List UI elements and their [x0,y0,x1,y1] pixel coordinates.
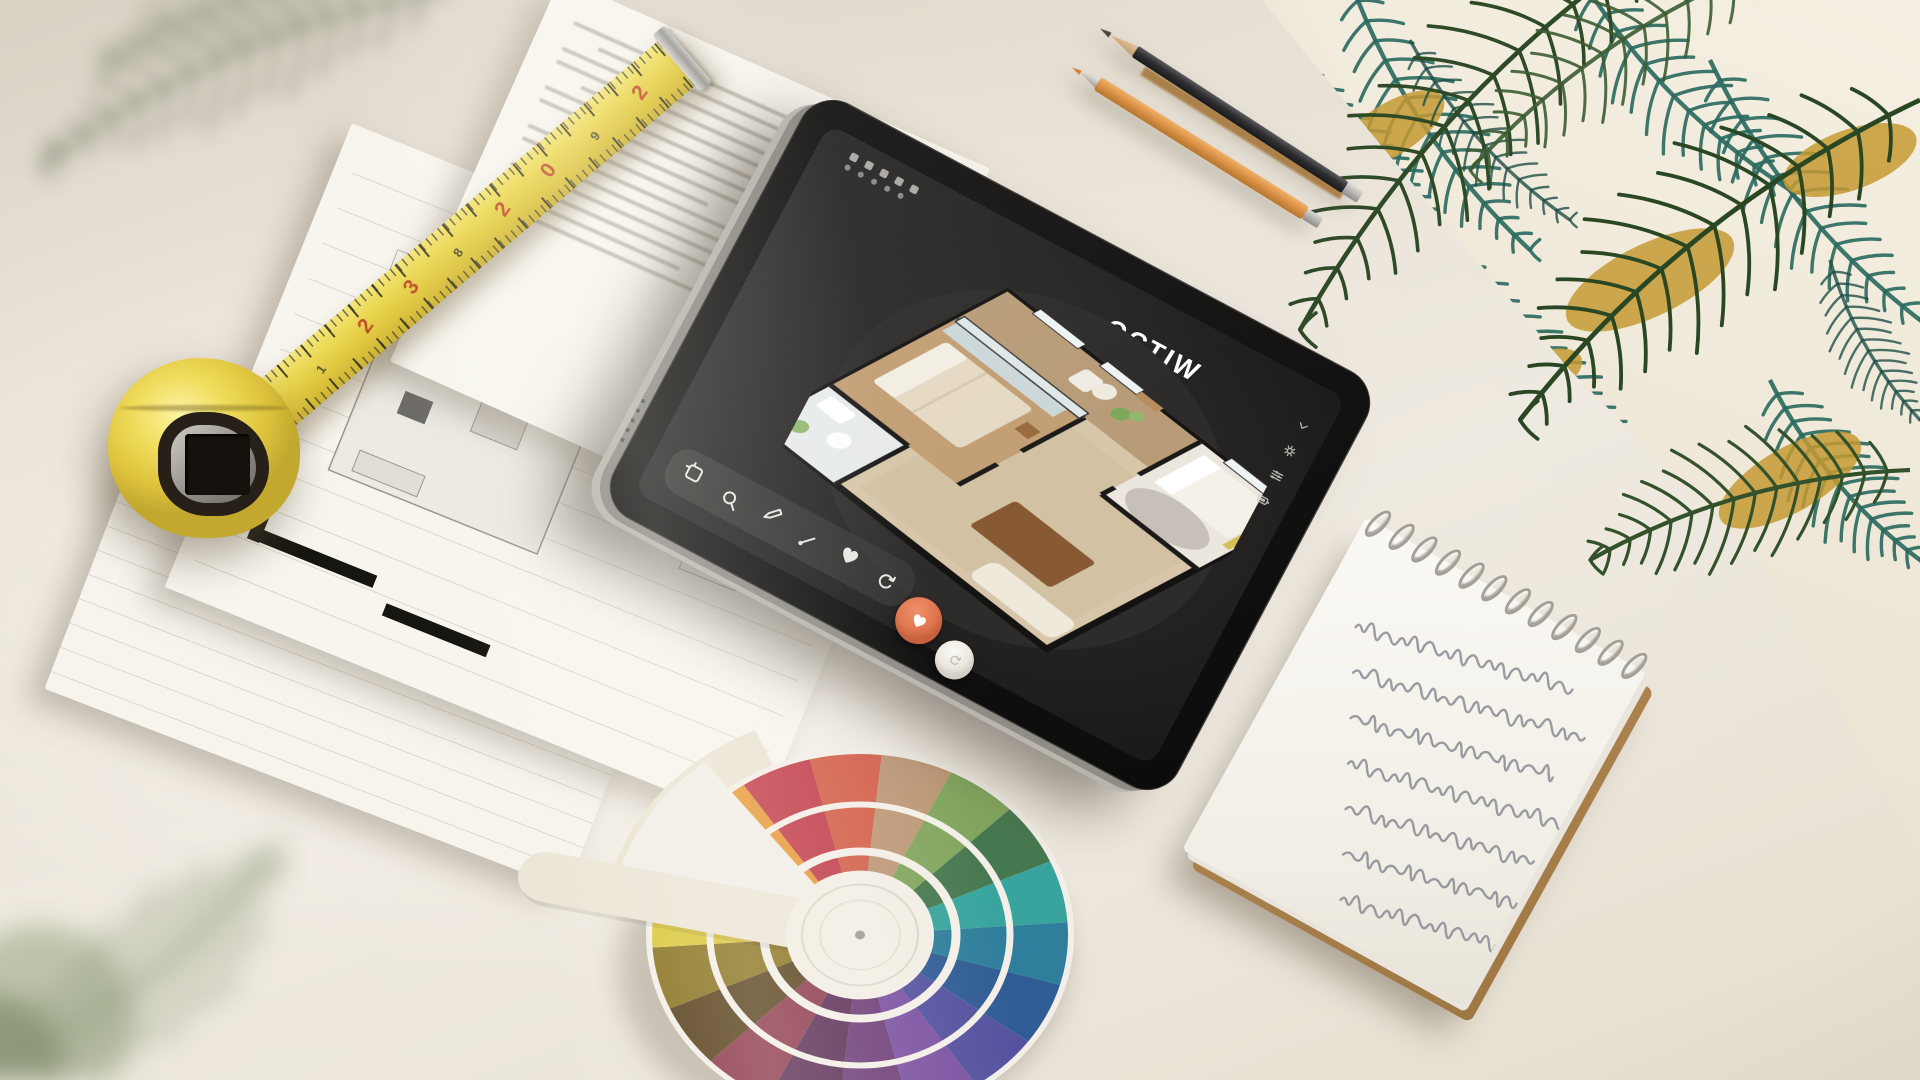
clock-status-icon [864,160,875,171]
handwriting-line [1342,802,1538,868]
status-glyph [857,171,865,179]
search-icon[interactable] [715,485,745,515]
foreground-leaf-blur [0,690,330,1080]
pencil-lead [1071,65,1082,75]
spiral-coil [1431,545,1466,580]
notification-status-icon [909,184,920,195]
handwriting-line [1349,666,1590,743]
spiral-coil [1524,597,1559,632]
pencil-lead [1098,26,1111,38]
signal-status-icon [879,168,890,179]
tape-measure-body [108,358,300,538]
tape-number: 2 [353,314,379,337]
palm-shadow-top-left [0,0,460,280]
status-glyph [883,185,891,193]
refresh-icon[interactable] [870,567,900,597]
spiral-coil [1547,610,1582,645]
color-wheel [600,715,1120,1080]
tape-exit-slot [185,434,250,495]
spiral-coil [1477,571,1512,606]
pencil-end-cap [1302,208,1324,228]
grid-status-icon [849,152,860,163]
tape-number: 2 [490,198,516,221]
tape-case-seam [120,405,289,411]
status-glyph [896,192,904,200]
handwriting-line [1339,848,1520,911]
tape-number: 8 [450,245,466,260]
spiral-coil [1594,636,1629,671]
status-glyph [870,178,878,186]
tape-number: 2 [627,81,653,104]
status-glyph [843,164,851,172]
tape-number: 9 [587,129,603,144]
handwriting-line [1337,893,1500,952]
status-icons [843,152,919,204]
heart-icon[interactable] [834,541,864,571]
battery-status-icon [894,176,905,187]
pen-icon[interactable] [756,500,786,530]
crop-icon[interactable] [679,459,709,489]
spiral-coil [1407,532,1442,567]
tape-number: 1 [313,362,329,377]
tape-number: 0 [536,159,562,182]
tape-number: 3 [399,276,425,299]
brush-icon[interactable] [792,526,822,556]
photo-flatlay: 812382092 OCTIW RACE ONE [0,0,1920,1080]
